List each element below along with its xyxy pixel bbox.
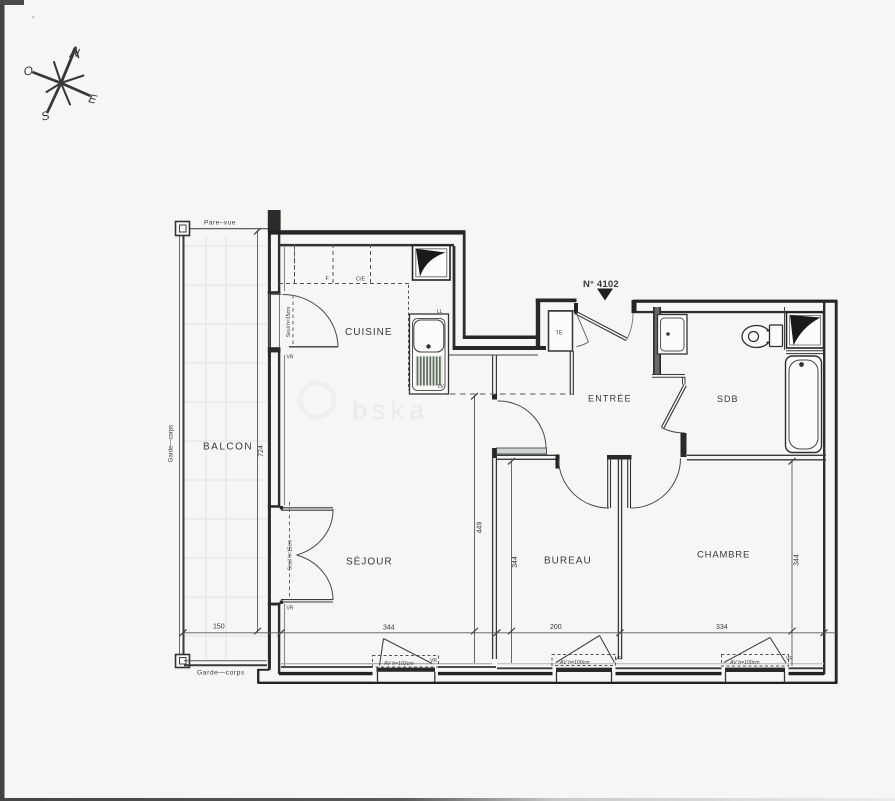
svg-text:200: 200	[550, 624, 562, 631]
svg-text:bska: bska	[352, 395, 429, 425]
svg-text:LL: LL	[437, 309, 443, 315]
svg-text:334: 334	[716, 624, 728, 631]
svg-text:CUISINE: CUISINE	[345, 327, 393, 338]
svg-text:344: 344	[512, 556, 519, 568]
svg-text:Seuil h=15cm: Seuil h=15cm	[286, 307, 292, 337]
svg-text:344: 344	[794, 554, 801, 566]
svg-text:ENTRÉE: ENTRÉE	[588, 394, 632, 404]
svg-text:C/E: C/E	[356, 277, 366, 283]
svg-text:BALCON: BALCON	[203, 442, 253, 453]
svg-text:VR: VR	[287, 355, 294, 361]
svg-text:Pare–vue: Pare–vue	[204, 220, 236, 227]
svg-text:AV h=102cm: AV h=102cm	[383, 661, 414, 667]
svg-text:SÉJOUR: SÉJOUR	[346, 555, 393, 568]
svg-text:BUREAU: BUREAU	[544, 556, 592, 567]
svg-text:344: 344	[383, 625, 395, 632]
svg-text:Seuil h=15cm: Seuil h=15cm	[288, 540, 294, 570]
svg-text:TE: TE	[556, 331, 563, 337]
svg-text:AV h=100cm: AV h=100cm	[729, 660, 760, 666]
svg-text:CHAMBRE: CHAMBRE	[697, 550, 750, 561]
svg-text:VR: VR	[430, 658, 437, 664]
svg-text:Garde—corps: Garde—corps	[197, 670, 245, 677]
svg-text:LV: LV	[438, 384, 444, 390]
svg-text:N° 4102: N° 4102	[583, 279, 619, 290]
svg-text:AV h=100cm: AV h=100cm	[559, 660, 590, 666]
svg-text:SDB: SDB	[717, 394, 739, 404]
svg-text:449: 449	[477, 522, 484, 534]
svg-text:VR: VR	[287, 606, 294, 612]
svg-text:150: 150	[213, 624, 225, 631]
svg-text:Garde—corps: Garde—corps	[169, 425, 175, 462]
svg-text:724: 724	[258, 445, 265, 457]
